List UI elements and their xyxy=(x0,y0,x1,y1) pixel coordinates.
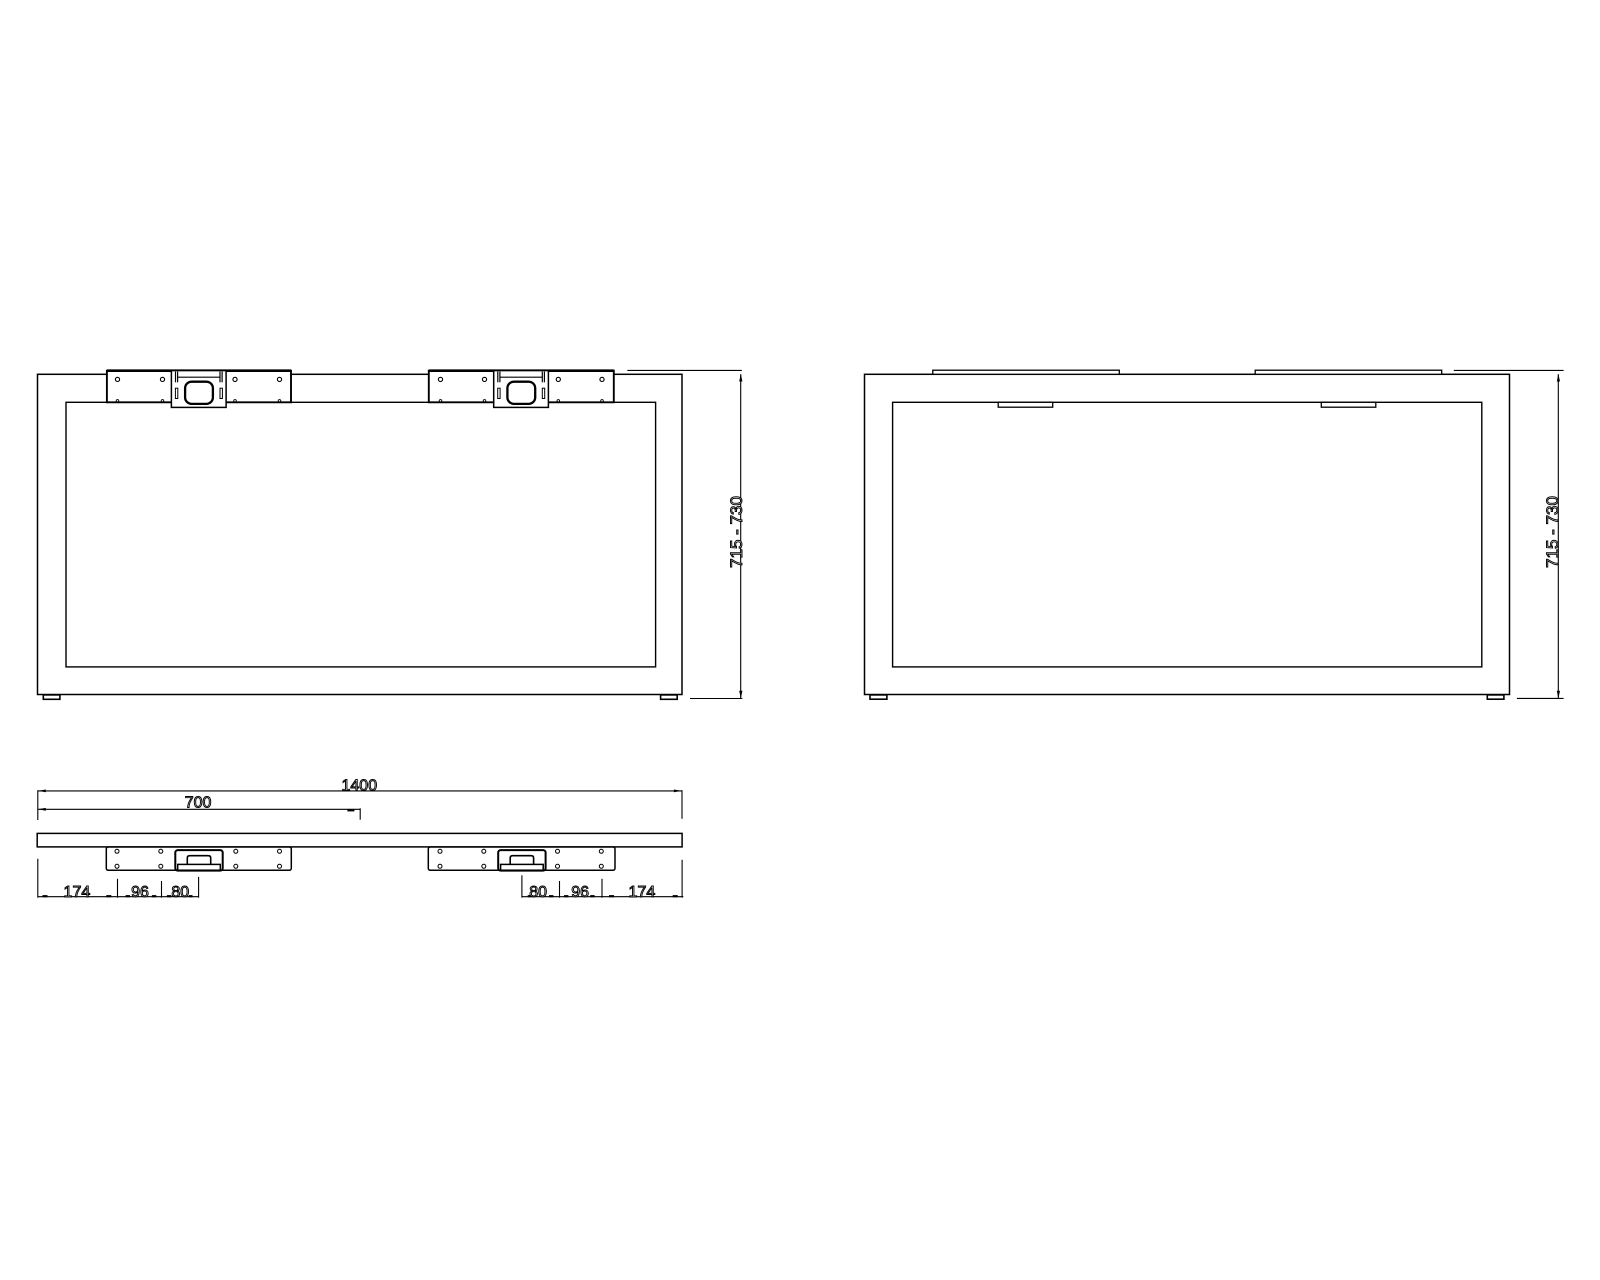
svg-text:96: 96 xyxy=(571,884,589,901)
svg-text:1400: 1400 xyxy=(342,778,378,795)
svg-text:700: 700 xyxy=(185,795,212,812)
svg-text:715 - 730: 715 - 730 xyxy=(727,496,746,568)
svg-text:715 - 730: 715 - 730 xyxy=(1543,496,1562,568)
svg-text:174: 174 xyxy=(629,884,656,901)
svg-text:80: 80 xyxy=(171,884,189,901)
svg-text:174: 174 xyxy=(64,884,91,901)
svg-text:96: 96 xyxy=(131,884,149,901)
svg-text:80: 80 xyxy=(529,884,547,901)
